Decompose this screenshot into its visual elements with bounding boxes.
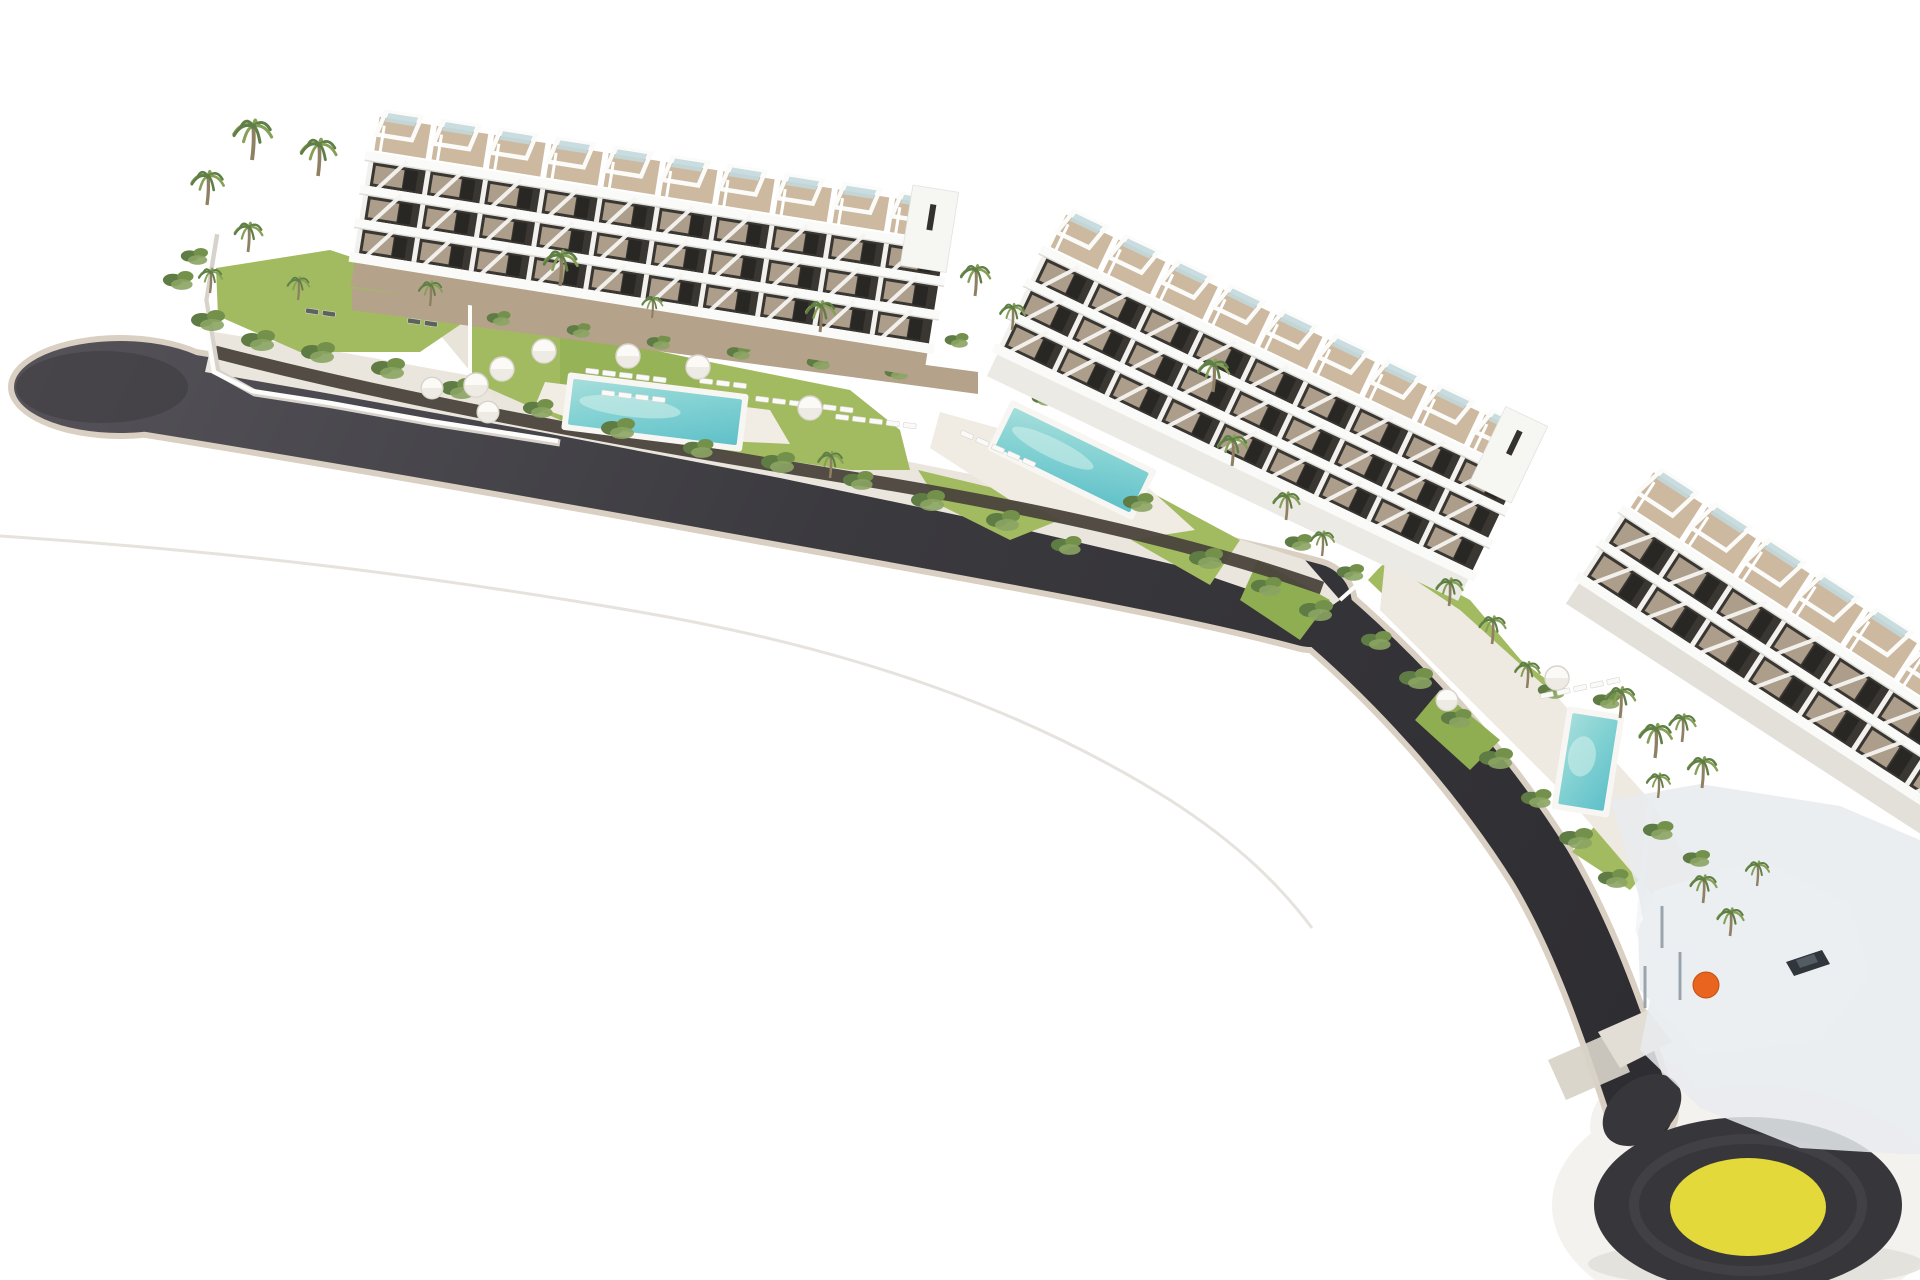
palm-trunk [652, 300, 653, 318]
sun-lounger [903, 422, 917, 429]
palm-trunk [248, 227, 249, 252]
shrub [1606, 877, 1628, 888]
palm-crown [1321, 533, 1325, 537]
palm-crown [1681, 717, 1685, 721]
palm-trunk [1658, 777, 1659, 798]
sun-lounger [1590, 681, 1604, 689]
palm-frond [1670, 718, 1683, 725]
palm-crown [829, 454, 833, 458]
palm-frond [1688, 761, 1703, 769]
parasol [616, 344, 640, 368]
palm-tree [1640, 724, 1672, 758]
palm-tree [301, 139, 336, 176]
palm-crown [559, 254, 564, 259]
palm-crown [206, 174, 211, 179]
palm-tree [1688, 757, 1717, 788]
parasol [477, 401, 499, 423]
scene-layers [0, 100, 1920, 1280]
palm-trunk [1213, 365, 1214, 392]
palm-trunk [1286, 497, 1287, 520]
palm-frond [1640, 729, 1656, 738]
shrub [1651, 829, 1673, 840]
shrub [250, 339, 274, 351]
palm-tree [234, 120, 272, 160]
shrub-cluster [1285, 534, 1312, 551]
shrub [1449, 717, 1471, 728]
palm-crown [1729, 911, 1733, 915]
shrub [813, 361, 830, 369]
scene-svg [0, 0, 1920, 1280]
shrub [531, 407, 553, 418]
palm-trunk [1527, 666, 1528, 688]
shrub [851, 479, 873, 490]
shrub [1568, 837, 1592, 849]
shrub-cluster [181, 248, 208, 265]
shrub [1488, 757, 1512, 769]
parasol [421, 377, 443, 399]
palm-trunk [252, 126, 254, 160]
palm-trunk [430, 285, 431, 306]
palm-frond [192, 176, 208, 185]
palm-trunk [820, 306, 821, 332]
shrub [573, 329, 590, 337]
palm-crown [1654, 727, 1659, 732]
shrub [653, 341, 670, 349]
shrub [1308, 609, 1332, 621]
palm-trunk [1655, 729, 1656, 758]
shrub [1292, 541, 1311, 551]
palm-crown [297, 279, 300, 282]
palm-crown [651, 298, 654, 301]
palm-frond [235, 227, 249, 234]
palm-trunk [1620, 692, 1621, 718]
palm-crown [1011, 306, 1015, 310]
palm-crown [209, 270, 213, 274]
sun-lounger [1573, 684, 1587, 692]
palm-crown [1701, 760, 1705, 764]
palm-crown [250, 123, 256, 129]
palm-trunk [1232, 440, 1233, 466]
palm-trunk [1682, 719, 1683, 742]
palm-trunk [975, 270, 976, 296]
palm-trunk [560, 256, 562, 286]
palm-crown [1448, 581, 1452, 585]
palm-trunk [830, 456, 831, 478]
shrub [310, 351, 334, 363]
palm-crown [1702, 878, 1706, 882]
shrub [1529, 797, 1551, 808]
palm-tree [1311, 531, 1334, 556]
shrub [1131, 501, 1153, 512]
parasol [490, 357, 514, 381]
shrub [493, 317, 510, 325]
shrub [1369, 639, 1391, 650]
palm-frond [1311, 535, 1323, 541]
shrub [171, 279, 193, 290]
parasol [464, 373, 488, 397]
palm-tree [961, 265, 990, 296]
palm-frond [1647, 777, 1659, 783]
palm-crown [247, 225, 251, 229]
palm-trunk [1492, 621, 1493, 644]
shrub [1259, 585, 1281, 596]
palm-crown [819, 304, 823, 308]
palm-crown [1212, 362, 1217, 367]
parasol [1545, 666, 1569, 690]
palm-crown [1526, 664, 1530, 668]
shrub [1600, 699, 1619, 709]
parasol [798, 396, 822, 420]
shrub-cluster [1593, 692, 1620, 709]
palm-trunk [298, 281, 299, 301]
shrub [770, 461, 794, 473]
shrub [1690, 857, 1709, 867]
palm-trunk [1449, 583, 1450, 606]
palm-tree [192, 171, 224, 205]
palm-crown [974, 268, 978, 272]
palm-crown [317, 142, 322, 147]
shrub [733, 351, 750, 359]
shrub [188, 255, 207, 265]
palm-trunk [318, 145, 320, 176]
palm-trunk [1703, 880, 1704, 903]
palm-crown [1491, 619, 1495, 623]
shrub [1059, 544, 1081, 555]
shrub-cluster [945, 333, 969, 348]
palm-trunk [1730, 913, 1731, 936]
palm-trunk [1757, 865, 1758, 886]
orange-parasol [1693, 972, 1719, 998]
shrub [1344, 571, 1363, 581]
shrub [691, 447, 713, 458]
parasol [686, 355, 710, 379]
palm-crown [429, 283, 433, 287]
palm-tree [235, 223, 263, 252]
shrub [995, 519, 1019, 531]
palm-frond [234, 125, 253, 135]
palm-crown [1285, 495, 1289, 499]
parasol [532, 339, 556, 363]
palm-trunk [1012, 308, 1013, 330]
palm-trunk [207, 176, 208, 205]
shrub [951, 339, 968, 347]
architectural-rendering-canvas [0, 0, 1920, 1280]
shrub [610, 427, 634, 439]
palm-crown [1231, 438, 1235, 442]
sun-lounger [1607, 677, 1621, 685]
parasol [1436, 689, 1458, 711]
palm-crown [1756, 863, 1760, 867]
road-cap-inner-shade [16, 351, 188, 423]
palm-frond [961, 269, 976, 277]
shrub [200, 319, 224, 331]
palm-tree [1669, 714, 1695, 742]
palm-crown [1619, 690, 1623, 694]
palm-trunk [210, 272, 211, 293]
roundabout-yellow-island [1670, 1158, 1826, 1256]
palm-crown [1657, 775, 1661, 779]
shrub [1408, 677, 1432, 689]
palm-trunk [1702, 762, 1703, 788]
shrub [1198, 557, 1222, 569]
shrub-cluster [163, 271, 194, 290]
palm-trunk [1322, 535, 1323, 556]
palm-frond [301, 144, 319, 153]
shrub [380, 367, 404, 379]
shrub [920, 499, 944, 511]
